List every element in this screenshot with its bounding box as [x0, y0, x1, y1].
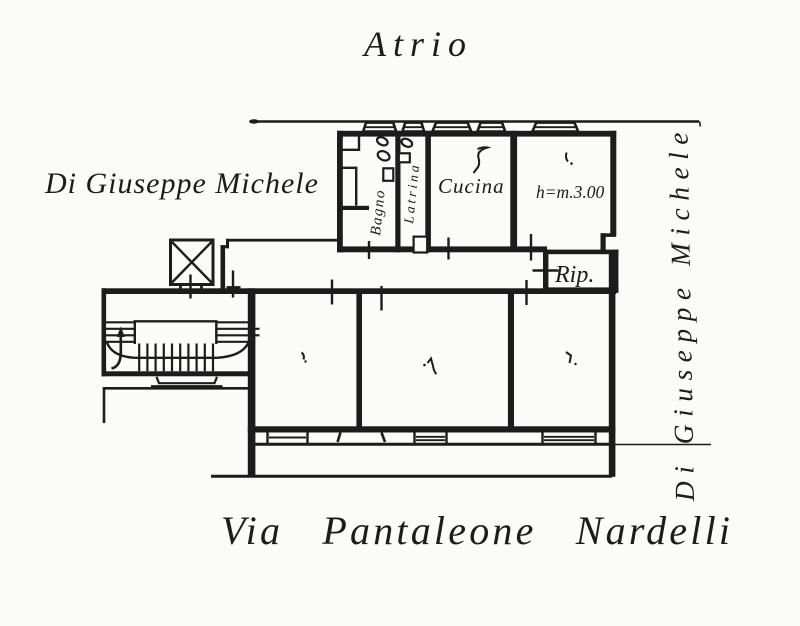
svg-text:h=m.3.00: h=m.3.00 — [536, 182, 604, 202]
svg-text:Atrio: Atrio — [362, 24, 473, 64]
svg-text:Rip.: Rip. — [554, 262, 594, 288]
svg-text:Di Giuseppe Michele: Di Giuseppe Michele — [44, 167, 319, 200]
svg-text:Cucina: Cucina — [438, 174, 505, 198]
svg-text:Di Giuseppe Michele: Di Giuseppe Michele — [662, 125, 700, 503]
svg-text:Via Pantaleone Nardelli: Via Pantaleone Nardelli — [221, 508, 733, 553]
